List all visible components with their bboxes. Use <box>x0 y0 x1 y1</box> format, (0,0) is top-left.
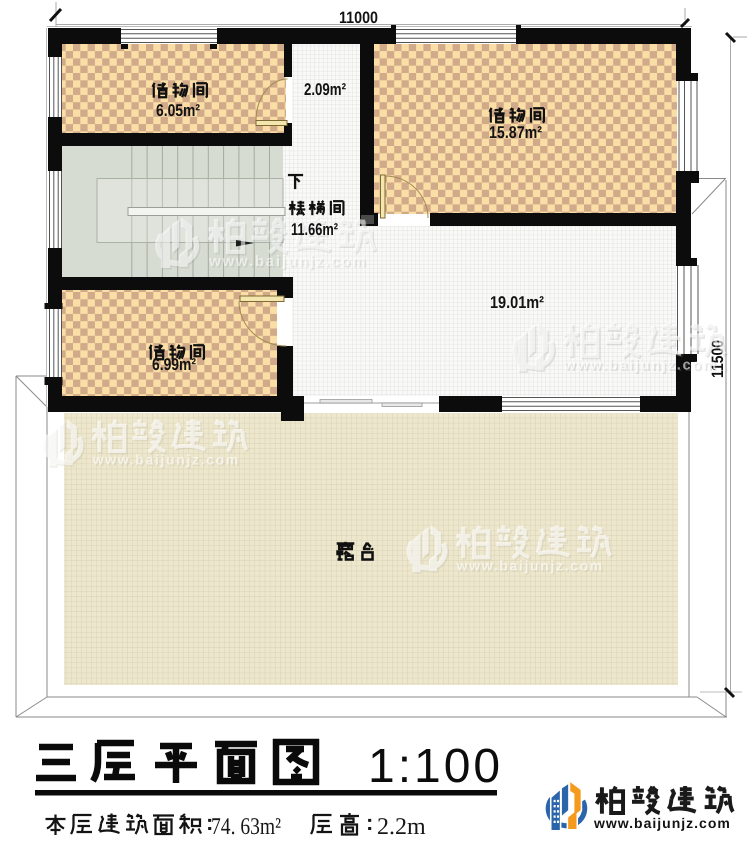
svg-text::: : <box>366 810 373 835</box>
svg-text:2.09m²: 2.09m² <box>304 80 346 99</box>
svg-text:6.05m²: 6.05m² <box>156 101 200 120</box>
svg-text:2.2m: 2.2m <box>377 814 426 840</box>
svg-text:6.99m²: 6.99m² <box>152 355 196 374</box>
svg-text:1:100: 1:100 <box>368 740 503 793</box>
svg-text:www.baijunjz.com: www.baijunjz.com <box>593 815 731 831</box>
svg-text:11.66m²: 11.66m² <box>291 220 338 239</box>
svg-text:15.87m²: 15.87m² <box>489 123 542 142</box>
svg-text:74. 63m²: 74. 63m² <box>211 814 281 840</box>
svg-text:11000: 11000 <box>339 9 378 27</box>
svg-text:19.01m²: 19.01m² <box>490 293 544 312</box>
